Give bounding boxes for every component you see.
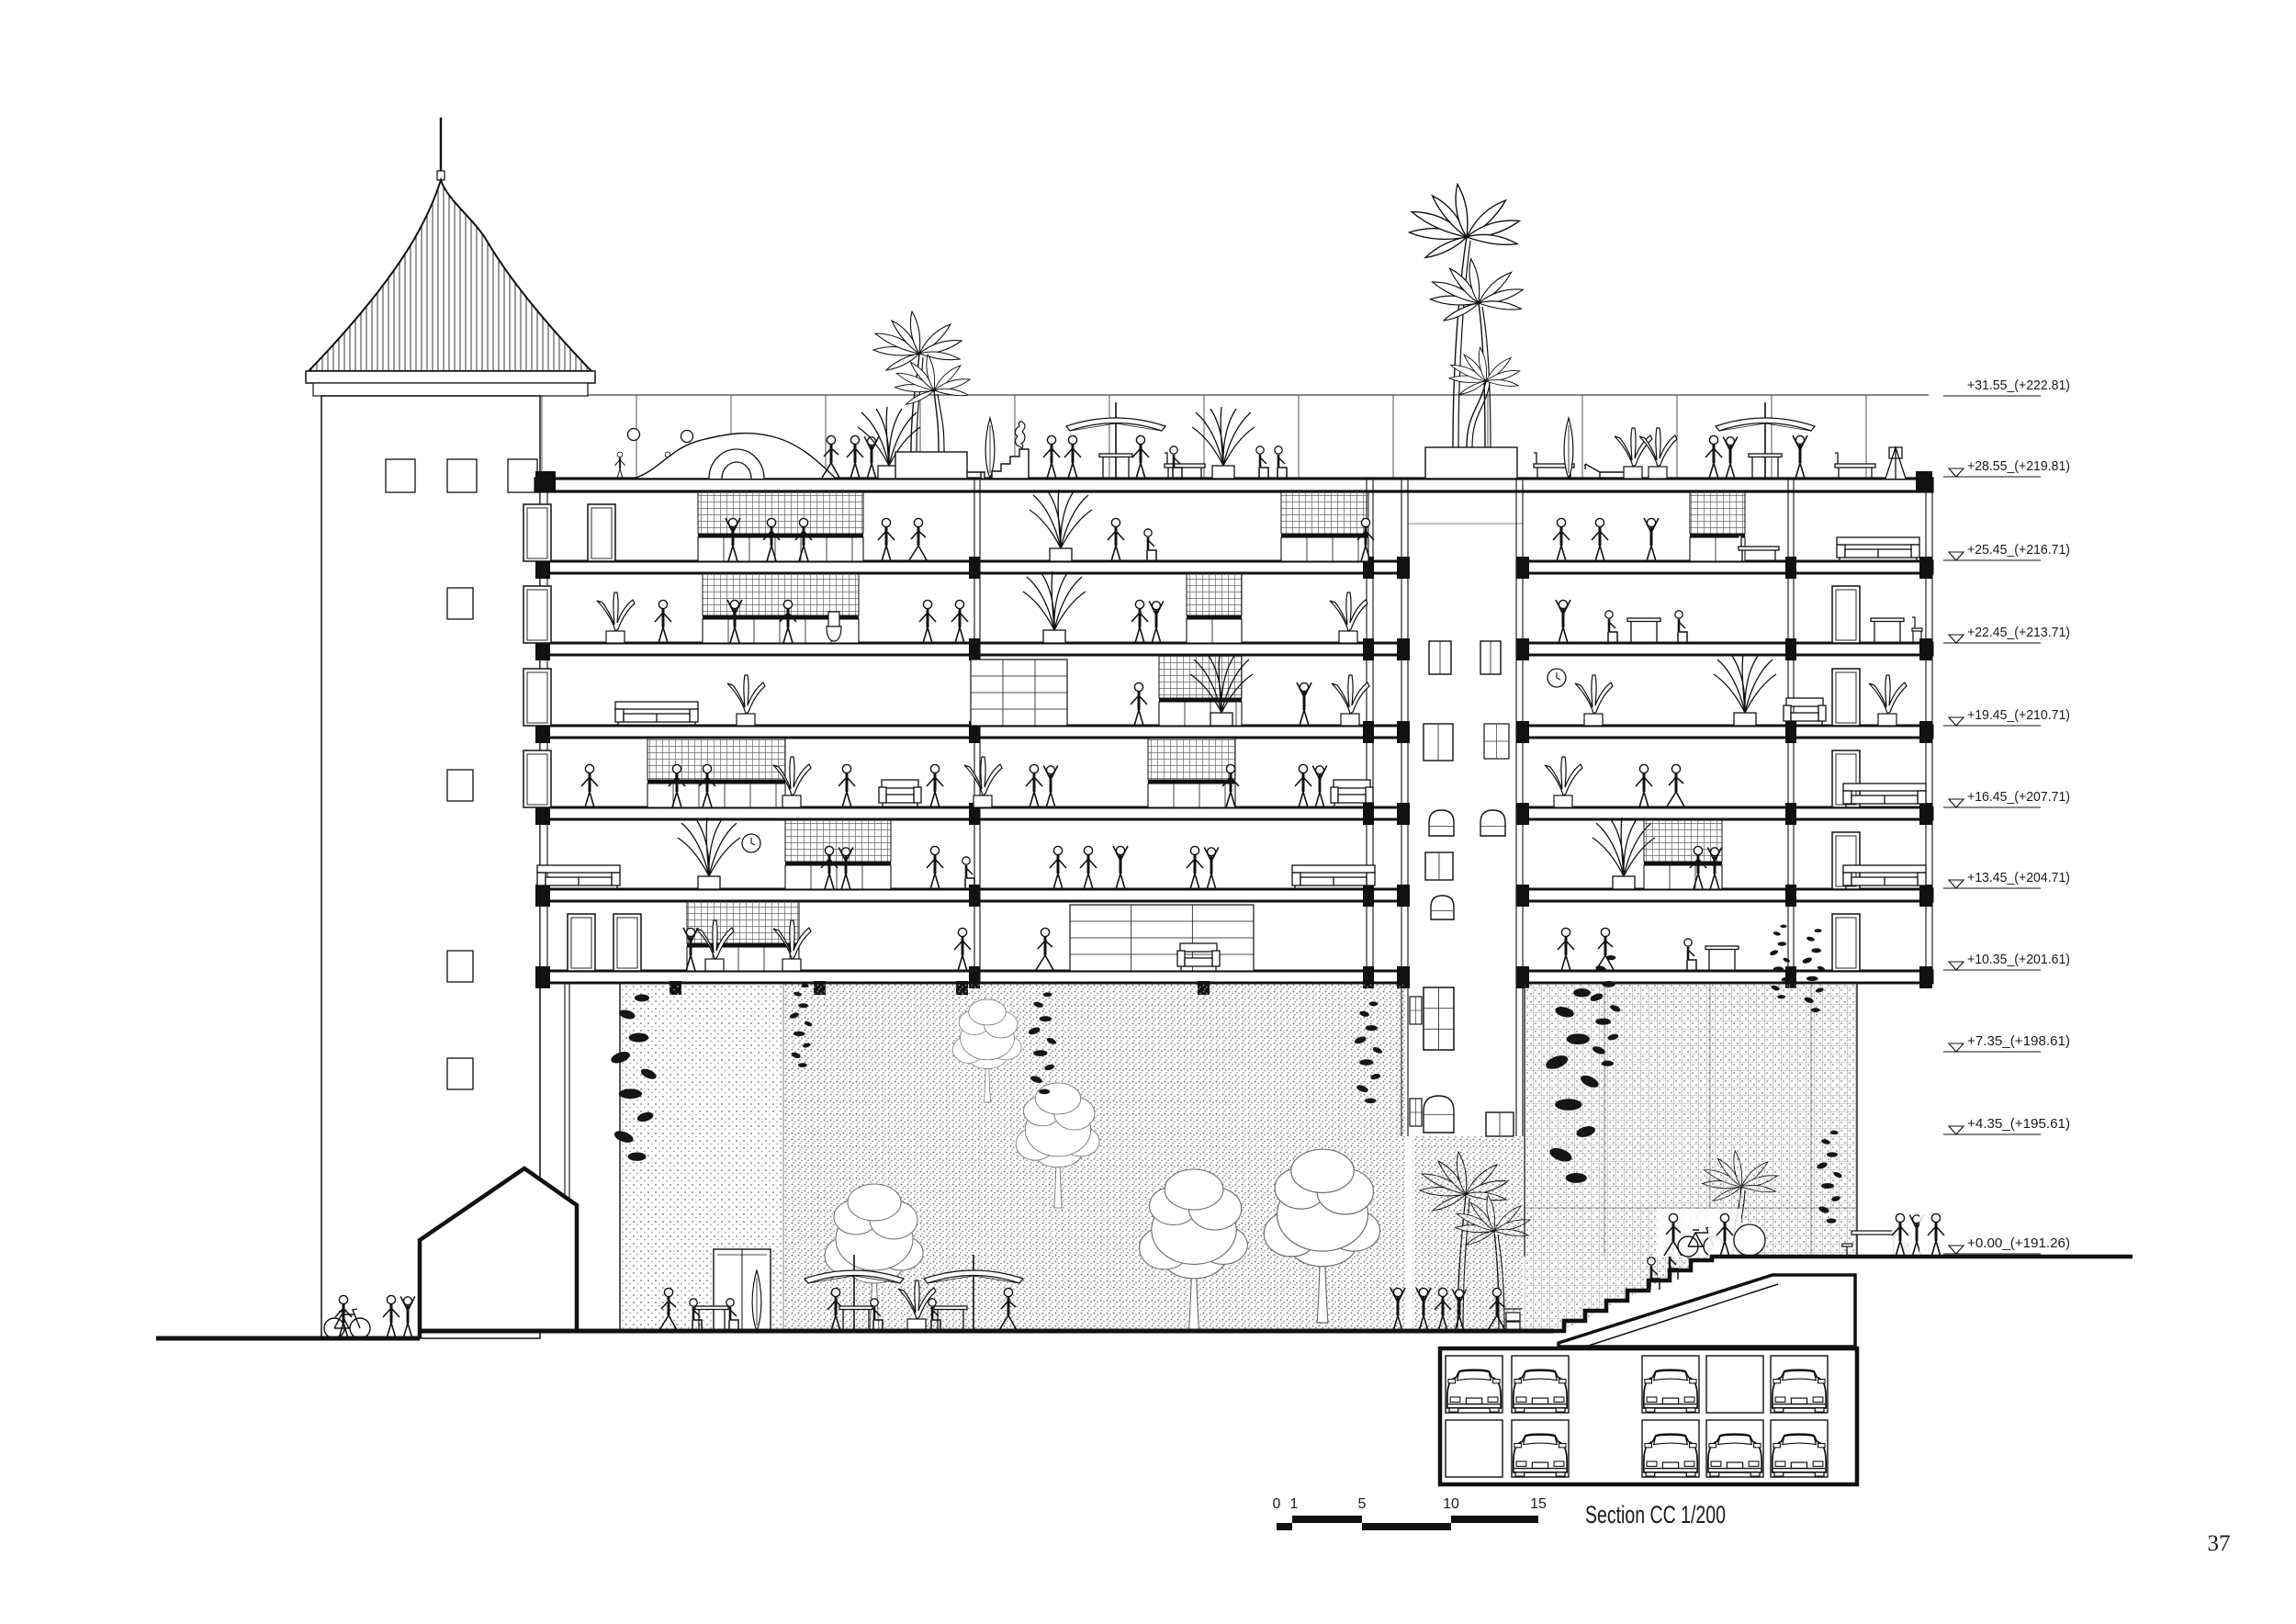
scale-label: 0 [1273,1496,1281,1512]
elevation-marker: +7.35_(+198.61) [1943,1033,2070,1052]
elevation-marker: +25.45_(+216.71) [1943,542,2070,560]
scale-bar: 0151015 [1273,1496,1547,1530]
elevation-marker: +28.55_(+219.81) [1943,458,2070,477]
existing-facade-strip [1408,479,1523,1136]
drawing-title: Section CC 1/200 [1585,1501,1726,1528]
scale-label: 5 [1358,1496,1367,1512]
elevation-marker: +10.35_(+201.61) [1943,952,2070,970]
scale-label: 10 [1443,1496,1459,1512]
elevation-marker: +13.45_(+204.71) [1943,870,2070,888]
elevation-label: +7.35_(+198.61) [1967,1033,2070,1049]
elevation-marker: +31.55_(+222.81) [1943,378,2070,396]
underground-parking [1440,1348,1857,1484]
tower-cornice [306,371,595,383]
scale-label: 1 [1290,1496,1299,1512]
elevation-markers: +31.55_(+222.81)+28.55_(+219.81)+25.45_(… [1943,378,2070,1254]
elevation-label: +22.45_(+213.71) [1967,625,2070,640]
scale-label: 15 [1530,1496,1547,1512]
drawing-sheet: +31.55_(+222.81)+28.55_(+219.81)+25.45_(… [0,0,2296,1624]
elevation-marker: +4.35_(+195.61) [1943,1116,2070,1134]
elevation-label: +10.35_(+201.61) [1967,952,2070,967]
tower-conical-roof [309,180,591,371]
garden-level [565,925,1953,1331]
elevation-label: +13.45_(+204.71) [1967,870,2070,885]
elevation-marker: +22.45_(+213.71) [1943,625,2070,643]
elevation-label: +16.45_(+207.71) [1967,789,2070,805]
elevation-label: +19.45_(+210.71) [1967,707,2070,723]
elevation-marker: +16.45_(+207.71) [1943,789,2070,807]
section-drawing: +31.55_(+222.81)+28.55_(+219.81)+25.45_(… [0,0,2296,1624]
elevation-marker: +19.45_(+210.71) [1943,707,2070,726]
elevation-label: +25.45_(+216.71) [1967,542,2070,558]
elevation-label: +4.35_(+195.61) [1967,1116,2070,1132]
elevation-label: +31.55_(+222.81) [1967,378,2070,393]
page-number: 37 [2208,1531,2231,1556]
elevation-marker: +0.00_(+191.26) [1943,1235,2070,1254]
elevation-label: +0.00_(+191.26) [1967,1235,2070,1251]
elevation-label: +28.55_(+219.81) [1967,458,2070,474]
